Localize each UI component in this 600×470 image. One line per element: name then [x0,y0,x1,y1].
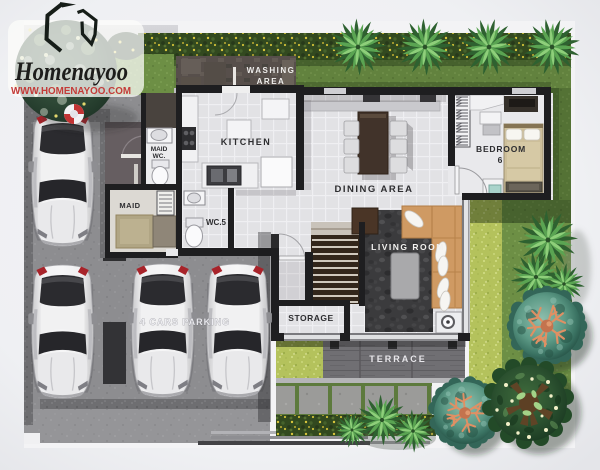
svg-text:4 CARS PARKING: 4 CARS PARKING [140,317,230,327]
svg-text:WWW.HOMENAYOO.COM: WWW.HOMENAYOO.COM [11,86,131,97]
svg-text:STORAGE: STORAGE [288,313,333,323]
svg-text:AREA: AREA [257,77,286,86]
svg-text:DINING AREA: DINING AREA [335,184,414,195]
svg-text:MAID: MAID [151,146,168,153]
svg-text:WC.5: WC.5 [206,218,227,227]
svg-text:LIVING ROOM: LIVING ROOM [371,242,445,252]
svg-text:BEDROOM: BEDROOM [476,144,526,154]
svg-text:Homenayoo: Homenayoo [14,57,128,86]
svg-text:TERRACE: TERRACE [369,354,427,364]
svg-text:WASHING: WASHING [247,66,296,75]
svg-text:WC.: WC. [153,153,166,160]
svg-text:6: 6 [498,155,503,165]
svg-text:KITCHEN: KITCHEN [221,137,272,147]
svg-text:MAID: MAID [119,201,140,210]
